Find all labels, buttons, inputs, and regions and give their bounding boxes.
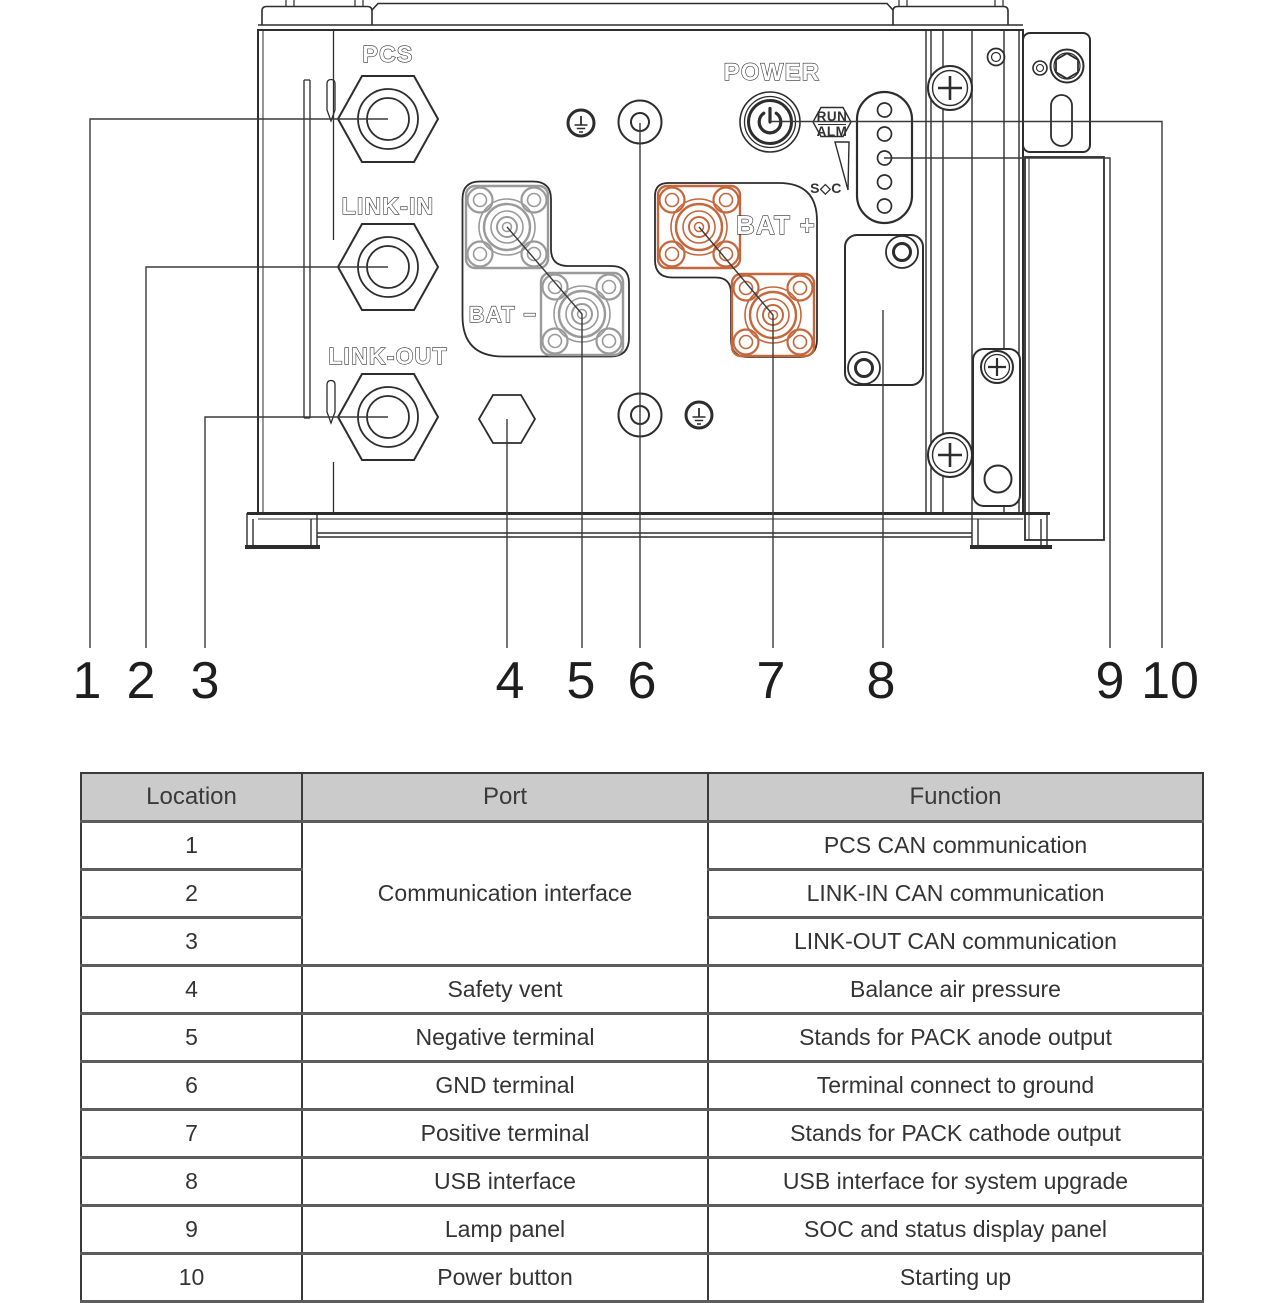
lid-bump-right [893, 7, 1008, 26]
cell-location: 2 [81, 870, 302, 918]
cell-function: PCS CAN communication [708, 822, 1203, 870]
cell-location: 9 [81, 1206, 302, 1254]
phillips-screw-icon [928, 433, 972, 477]
table-row: 1 Communication interface PCS CAN commun… [81, 822, 1203, 870]
cell-port: USB interface [302, 1158, 708, 1206]
foot-left [247, 513, 317, 545]
soc-indicator: S◇C [810, 142, 849, 196]
callout-6: 6 [628, 652, 657, 710]
leader-5 [507, 227, 582, 648]
cell-port-merged: Communication interface [302, 822, 708, 966]
cell-port: Lamp panel [302, 1206, 708, 1254]
callout-3: 3 [191, 652, 220, 710]
ground-symbol-icon [568, 110, 594, 136]
cell-function: Stands for PACK anode output [708, 1014, 1203, 1062]
callout-4: 4 [496, 652, 525, 710]
manual-page: PCS LINK-IN LINK-OUT POWER RUN A [0, 0, 1280, 1280]
header-location: Location [81, 773, 302, 822]
rail-screws [928, 66, 972, 477]
pcs-port: PCS [338, 41, 438, 162]
cell-function: Balance air pressure [708, 966, 1203, 1014]
cell-port: Safety vent [302, 966, 708, 1014]
cell-location: 4 [81, 966, 302, 1014]
soc-label: S◇C [810, 180, 842, 196]
led-icon [878, 127, 892, 141]
cell-function: LINK-OUT CAN communication [708, 918, 1203, 966]
callout-9: 9 [1096, 652, 1125, 710]
link-in-port: LINK-IN [338, 193, 438, 310]
hex-bolt [1051, 50, 1084, 83]
table-row: 5 Negative terminal Stands for PACK anod… [81, 1014, 1203, 1062]
link-in-label: LINK-IN [342, 193, 435, 219]
cell-function: Terminal connect to ground [708, 1062, 1203, 1110]
bat-minus-terminal: BAT − [463, 182, 630, 357]
callout-numbers: 1 2 3 4 5 6 7 8 9 10 [73, 652, 1199, 710]
callout-8: 8 [867, 652, 896, 710]
port-function-table: Location Port Function 1 Communication i… [80, 772, 1204, 1303]
cell-location: 3 [81, 918, 302, 966]
cell-location: 10 [81, 1254, 302, 1302]
header-port: Port [302, 773, 708, 822]
callout-1: 1 [73, 652, 102, 710]
cell-location: 1 [81, 822, 302, 870]
cell-location: 8 [81, 1158, 302, 1206]
cell-function: Starting up [708, 1254, 1203, 1302]
table-row: 7 Positive terminal Stands for PACK cath… [81, 1110, 1203, 1158]
bat-minus-label: BAT − [469, 302, 538, 327]
usb-panel [845, 235, 923, 385]
led-icon [878, 103, 892, 117]
cell-port: Negative terminal [302, 1014, 708, 1062]
power-label: POWER [724, 59, 821, 86]
cell-port: Power button [302, 1254, 708, 1302]
run-alm-indicator: RUN ALM [813, 108, 851, 140]
power-button: POWER [724, 59, 821, 152]
bottom-recess [317, 533, 972, 537]
cell-function: SOC and status display panel [708, 1206, 1203, 1254]
phillips-screw-icon [928, 66, 972, 110]
cell-location: 7 [81, 1110, 302, 1158]
bat-plus-label: BAT + [736, 210, 816, 240]
link-out-label: LINK-OUT [328, 343, 447, 369]
callout-7: 7 [757, 652, 786, 710]
rail-hole [988, 49, 1005, 66]
table-row: 8 USB interface USB interface for system… [81, 1158, 1203, 1206]
callout-2: 2 [127, 652, 156, 710]
device-diagram: PCS LINK-IN LINK-OUT POWER RUN A [0, 0, 1280, 740]
lid-bump-left [262, 7, 372, 26]
leader-2 [146, 267, 388, 648]
table-row: 9 Lamp panel SOC and status display pane… [81, 1206, 1203, 1254]
power-icon [759, 109, 781, 133]
mounting-plate [1025, 157, 1104, 540]
cell-location: 5 [81, 1014, 302, 1062]
alm-label: ALM [817, 124, 848, 139]
cell-function: Stands for PACK cathode output [708, 1110, 1203, 1158]
mounting-bracket-bottom [973, 349, 1020, 506]
cell-port: Positive terminal [302, 1110, 708, 1158]
cell-location: 6 [81, 1062, 302, 1110]
mounting-bracket-top [988, 33, 1091, 152]
table-row: 4 Safety vent Balance air pressure [81, 966, 1203, 1014]
led-icon [878, 199, 892, 213]
phillips-screw-icon [981, 351, 1013, 383]
lid-middle-strip [372, 4, 893, 11]
table-header-row: Location Port Function [81, 773, 1203, 822]
table-row: 6 GND terminal Terminal connect to groun… [81, 1062, 1203, 1110]
cell-function: USB interface for system upgrade [708, 1158, 1203, 1206]
led-icon [878, 175, 892, 189]
pcs-label: PCS [363, 41, 414, 67]
cell-function: LINK-IN CAN communication [708, 870, 1203, 918]
link-out-port: LINK-OUT [328, 343, 447, 460]
cell-port: GND terminal [302, 1062, 708, 1110]
ground-symbol-icon [686, 402, 712, 428]
callout-5: 5 [567, 652, 596, 710]
hinge-channel [304, 80, 310, 418]
table-row: 10 Power button Starting up [81, 1254, 1203, 1302]
callout-10: 10 [1141, 652, 1199, 710]
header-function: Function [708, 773, 1203, 822]
